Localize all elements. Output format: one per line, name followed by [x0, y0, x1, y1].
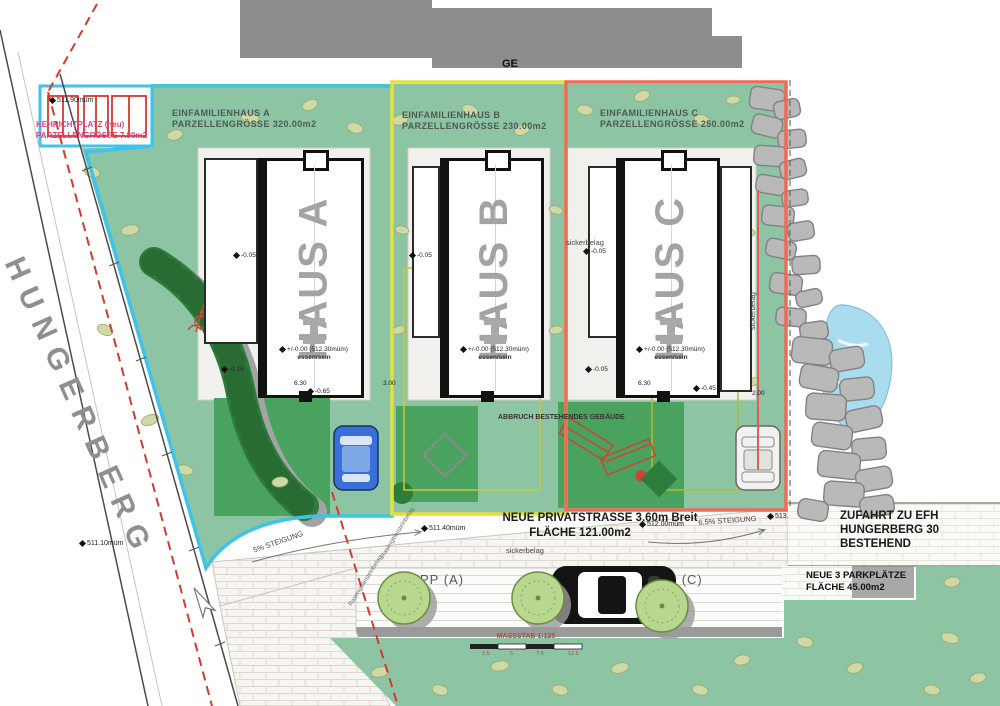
haus-c: HAUS C +/-0.00 (512.30müm) essen/sein: [616, 158, 720, 398]
haus-c-level: +/-0.00 (512.30müm): [637, 346, 705, 353]
site-plan: PP (A) PP (B) PP (C): [0, 0, 1000, 706]
level-marker-icon: [636, 346, 643, 353]
stair-icon: [660, 318, 682, 344]
haus-a-level: +/-0.00 (512.30müm): [280, 346, 348, 353]
haus-b-wing: [412, 166, 440, 338]
haus-a: HAUS A +/-0.00 (512.30müm) essen/sein: [258, 158, 364, 398]
skylight: [661, 150, 687, 171]
entrance-block: [657, 391, 670, 402]
haus-b-room: essen/sein: [478, 354, 511, 361]
entrance-block: [481, 391, 494, 402]
haus-a-wing: [204, 158, 258, 344]
stair-icon: [303, 318, 325, 344]
stair-icon: [484, 318, 506, 344]
haus-c-room: essen/sein: [654, 354, 687, 361]
level-marker-icon: [279, 346, 286, 353]
haus-a-room: essen/sein: [297, 354, 330, 361]
skylight: [485, 150, 511, 171]
skylight: [303, 150, 329, 171]
entrance-block: [299, 391, 312, 402]
haus-b-level: +/-0.00 (512.30müm): [461, 346, 529, 353]
level-marker-icon: [460, 346, 467, 353]
haus-c-annex: [720, 166, 752, 392]
haus-b: HAUS B +/-0.00 (512.30müm) essen/sein: [440, 158, 544, 398]
haus-c-wing: [588, 166, 618, 338]
